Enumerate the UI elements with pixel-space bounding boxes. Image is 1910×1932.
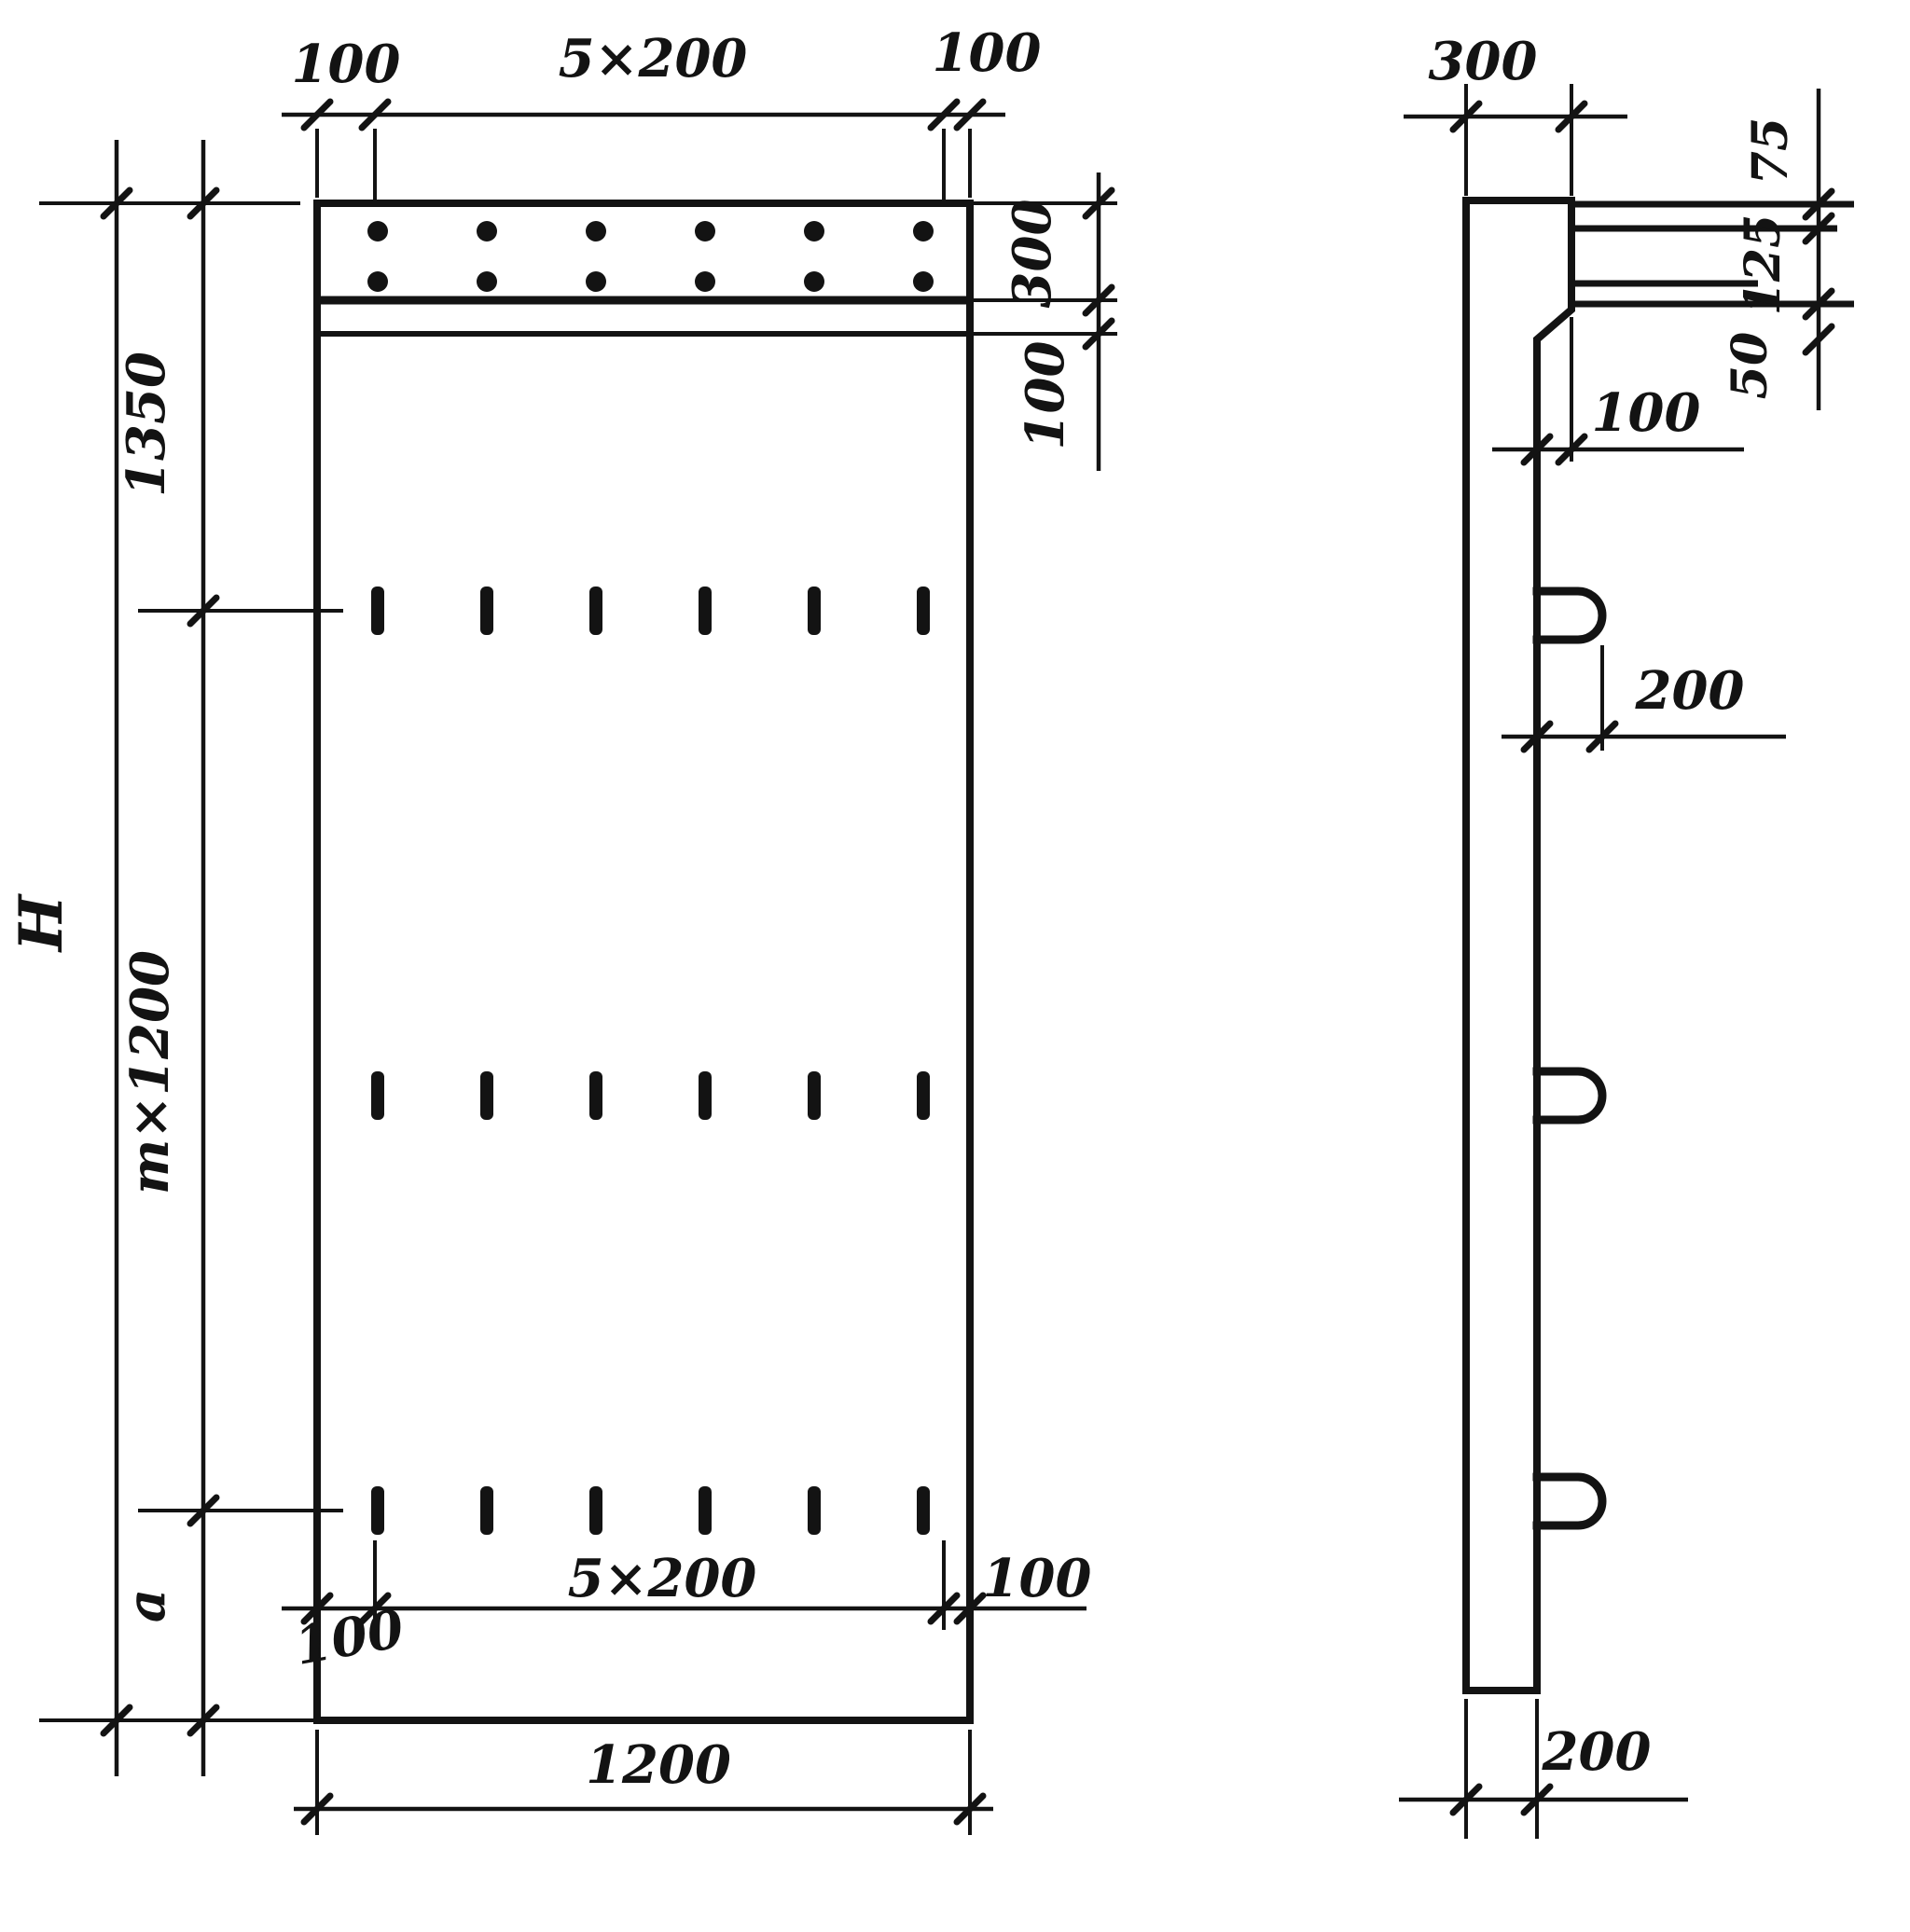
loop-mark	[917, 586, 930, 635]
loop-mark	[371, 1071, 384, 1120]
dim-label-row-spacing: m×1200	[119, 950, 181, 1194]
anchor-dots	[367, 221, 934, 292]
drawing-sheet: 100 5×200 100 300 100 1350 m×1200 a H 10…	[0, 0, 1910, 1932]
anchor-dot	[586, 221, 606, 241]
lifting-loop	[1537, 1071, 1602, 1120]
dim-label-top-spacing: 5×200	[559, 28, 748, 90]
dim-label-head-depth: 300	[1429, 31, 1538, 92]
anchor-dot	[477, 271, 497, 292]
loop-mark	[699, 586, 712, 635]
loop-mark	[917, 1486, 930, 1535]
lifting-loop	[1537, 591, 1602, 640]
loop-mark	[589, 586, 602, 635]
front-view: 100 5×200 100 300 100 1350 m×1200 a H 10…	[7, 22, 1117, 1835]
loop-section-marks	[371, 586, 930, 1535]
anchor-dot	[586, 271, 606, 292]
dim-label-prong-gap: 125	[1735, 214, 1792, 316]
dim-label-body-depth: 200	[1542, 1721, 1652, 1783]
loop-mark	[808, 586, 821, 635]
loop-mark	[699, 1486, 712, 1535]
dim-label-head-to-first-row: 1350	[116, 352, 177, 497]
dim-label-bottom-right-offset: 100	[983, 1548, 1092, 1609]
dim-label-overall-width: 1200	[586, 1734, 731, 1796]
dim-label-prong-bottom: 50	[1722, 332, 1779, 399]
dim-label-band-height: 300	[1002, 200, 1063, 309]
anchor-dot	[913, 221, 934, 241]
loop-mark	[917, 1071, 930, 1120]
dim-label-loop-protrusion: 200	[1635, 660, 1745, 722]
loop-mark	[699, 1071, 712, 1120]
loop-mark	[589, 1486, 602, 1535]
anchor-dot	[367, 221, 388, 241]
loop-mark	[808, 1071, 821, 1120]
dim-label-step-offset: 100	[1592, 382, 1701, 444]
loop-mark	[589, 1071, 602, 1120]
side-view: 300 75 125 50 100 200 200	[1399, 31, 1854, 1839]
dim-label-last-row-to-bottom: a	[116, 1589, 177, 1622]
loop-mark	[808, 1486, 821, 1535]
dim-label-bottom-spacing: 5×200	[568, 1548, 757, 1609]
anchor-dot	[477, 221, 497, 241]
loop-mark	[480, 1486, 493, 1535]
anchor-dot	[804, 221, 824, 241]
loop-mark	[480, 1071, 493, 1120]
anchor-dot	[367, 271, 388, 292]
lifting-loop	[1537, 1477, 1602, 1525]
loop-mark	[371, 1486, 384, 1535]
anchor-dot	[804, 271, 824, 292]
engineering-drawing: 100 5×200 100 300 100 1350 m×1200 a H 10…	[0, 0, 1910, 1932]
dim-label-strip-height: 100	[1015, 341, 1076, 450]
anchor-dot	[695, 271, 715, 292]
anchor-dot	[695, 221, 715, 241]
loop-mark	[480, 586, 493, 635]
anchor-dot	[913, 271, 934, 292]
panel-outline	[317, 203, 970, 1720]
loop-mark	[371, 586, 384, 635]
dim-label-prong-top: 75	[1742, 117, 1799, 185]
dim-label-top-left-offset: 100	[292, 34, 401, 95]
dim-label-top-right-offset: 100	[933, 22, 1042, 84]
profile-outline	[1466, 200, 1571, 1690]
dim-label-overall-height: H	[7, 892, 76, 953]
